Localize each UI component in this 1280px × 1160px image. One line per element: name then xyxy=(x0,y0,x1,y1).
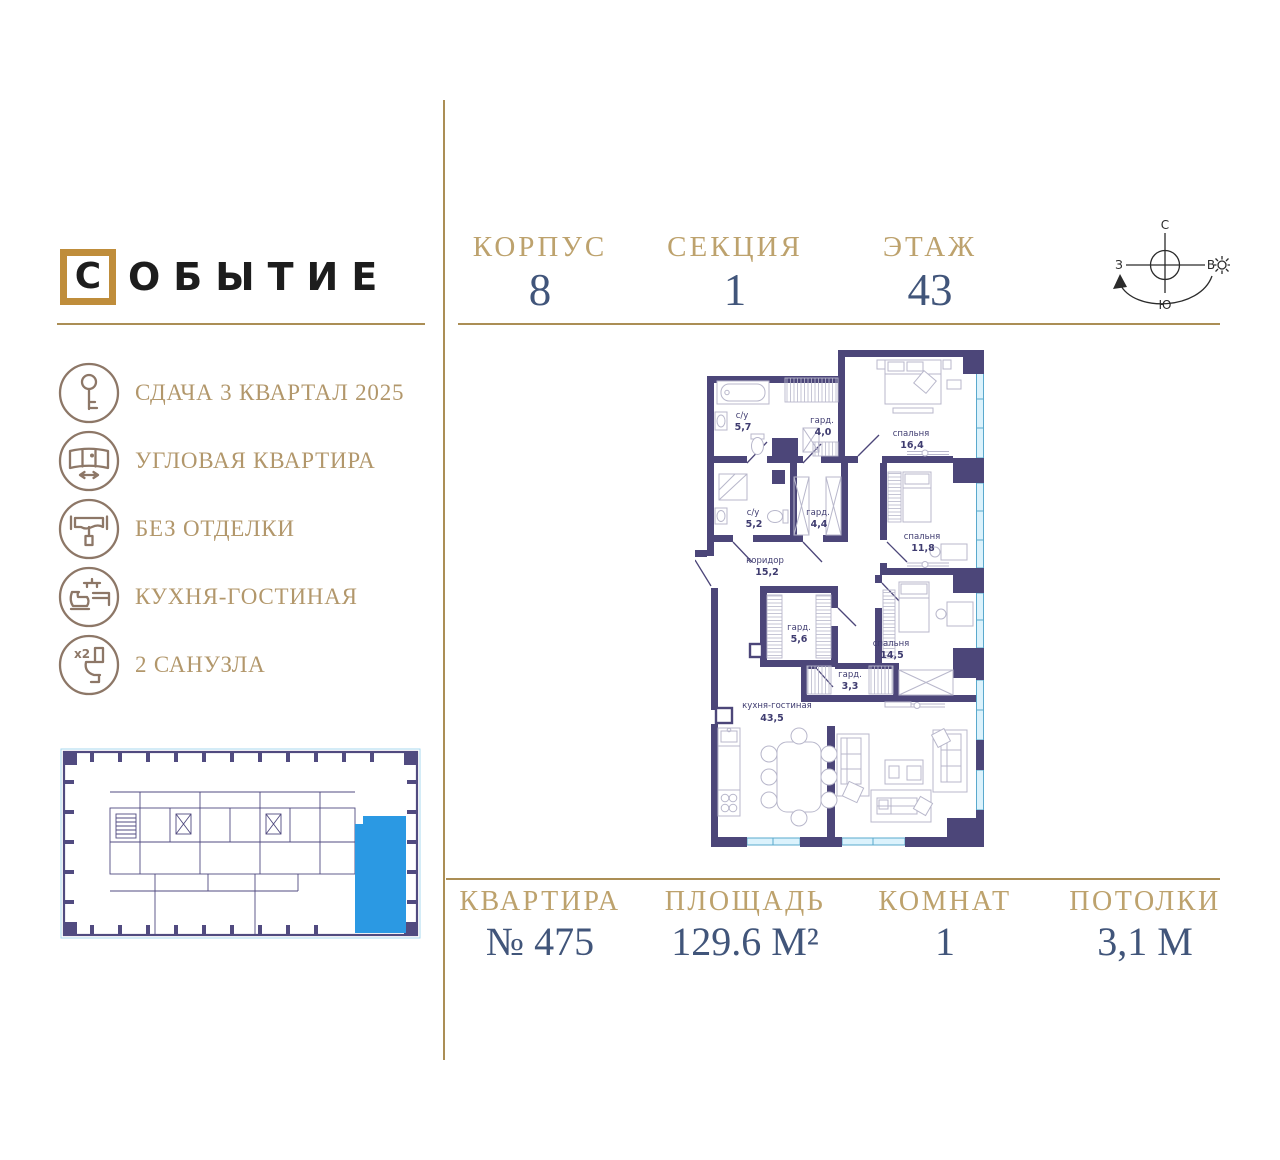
feature-label: БЕЗ ОТДЕЛКИ xyxy=(135,516,295,542)
field-section: СЕКЦИЯ 1 xyxy=(640,231,830,313)
field-label: СЕКЦИЯ xyxy=(640,231,830,264)
feature-handover: СДАЧА 3 КВАРТАЛ 2025 xyxy=(57,361,437,425)
field-value: 3,1 М xyxy=(1045,922,1245,962)
field-value: 1 xyxy=(640,268,830,313)
field-ceilings: ПОТОЛКИ 3,1 М xyxy=(1045,886,1245,962)
kitchen-living-icon xyxy=(57,565,121,629)
rotation-arrow-head xyxy=(1113,274,1127,289)
feature-label: СДАЧА 3 КВАРТАЛ 2025 xyxy=(135,380,404,406)
shaft-niche xyxy=(750,644,762,657)
glass-partition xyxy=(899,670,953,695)
svg-text:43,5: 43,5 xyxy=(760,713,783,724)
field-label: КОРПУС xyxy=(445,231,635,264)
svg-text:гард.: гард. xyxy=(806,508,830,518)
toilet-count-badge: x2 xyxy=(74,647,90,661)
compass-north-label: С xyxy=(1161,218,1169,232)
compass-west-label: З xyxy=(1115,258,1123,272)
svg-text:3,3: 3,3 xyxy=(842,681,859,692)
corner-window-icon xyxy=(57,429,121,493)
field-value: 129.6 М² xyxy=(645,922,845,962)
shaft-niche xyxy=(716,708,732,723)
feature-kitchen-living: КУХНЯ-ГОСТИНАЯ xyxy=(57,565,437,629)
field-value: 1 xyxy=(845,922,1045,962)
svg-text:гард.: гард. xyxy=(810,416,834,426)
svg-text:4,0: 4,0 xyxy=(815,427,832,438)
field-value: 43 xyxy=(835,268,1025,313)
field-apartment-number: КВАРТИРА № 475 xyxy=(440,886,640,962)
field-value: № 475 xyxy=(440,922,640,962)
logo-boxed-letter: С xyxy=(75,259,101,295)
field-rooms: КОМНАТ 1 xyxy=(845,886,1045,962)
svg-text:15,2: 15,2 xyxy=(755,567,778,578)
svg-text:кухня-гостиная: кухня-гостиная xyxy=(742,701,812,711)
sun-icon xyxy=(1213,256,1230,274)
field-floor: ЭТАЖ 43 xyxy=(835,231,1025,313)
field-label: КОМНАТ xyxy=(845,886,1045,918)
field-label: ПОТОЛКИ xyxy=(1045,886,1245,918)
svg-text:коридор: коридор xyxy=(746,556,784,566)
toilet-x2-icon: x2 xyxy=(57,633,121,697)
sidebar-divider xyxy=(57,323,425,325)
svg-text:гард.: гард. xyxy=(838,670,862,680)
feature-two-bathrooms: x2 2 САНУЗЛА xyxy=(57,633,437,697)
svg-text:4,4: 4,4 xyxy=(811,519,828,530)
feature-label: 2 САНУЗЛА xyxy=(135,652,266,678)
svg-text:16,4: 16,4 xyxy=(900,440,924,451)
svg-text:спальня: спальня xyxy=(904,532,941,542)
logo-text: ОБЫТИЕ xyxy=(128,258,390,296)
key-icon xyxy=(57,361,121,425)
footer-divider xyxy=(446,878,1220,880)
field-label: ЭТАЖ xyxy=(835,231,1025,264)
feature-label: УГЛОВАЯ КВАРТИРА xyxy=(135,448,376,474)
svg-text:с/у: с/у xyxy=(747,508,760,518)
field-area: ПЛОЩАДЬ 129.6 М² xyxy=(645,886,845,962)
field-label: КВАРТИРА xyxy=(440,886,640,918)
logo-frame: С xyxy=(60,249,116,305)
svg-text:спальня: спальня xyxy=(873,639,910,649)
svg-text:с/у: с/у xyxy=(736,411,749,421)
svg-text:5,2: 5,2 xyxy=(746,519,763,530)
header-divider xyxy=(458,323,1220,325)
apartment-card: С ОБЫТИЕ СДАЧА 3 КВАРТАЛ 2025 УГЛОВАЯ КВ… xyxy=(0,0,1280,1160)
svg-text:11,8: 11,8 xyxy=(911,543,935,554)
feature-list: СДАЧА 3 КВАРТАЛ 2025 УГЛОВАЯ КВАРТИРА БЕ… xyxy=(57,361,437,697)
field-label: ПЛОЩАДЬ xyxy=(645,886,845,918)
feature-label: КУХНЯ-ГОСТИНАЯ xyxy=(135,584,358,610)
feature-corner-apartment: УГЛОВАЯ КВАРТИРА xyxy=(57,429,437,493)
svg-text:5,6: 5,6 xyxy=(791,634,808,645)
svg-text:5,7: 5,7 xyxy=(735,422,752,433)
highlighted-unit xyxy=(355,816,406,933)
field-value: 8 xyxy=(445,268,635,313)
svg-text:спальня: спальня xyxy=(893,429,930,439)
compass-south-label: Ю xyxy=(1159,298,1172,312)
brand-logo: С ОБЫТИЕ xyxy=(60,230,422,324)
field-building: КОРПУС 8 xyxy=(445,231,635,313)
floor-overview-plan xyxy=(58,746,424,942)
paint-roller-icon xyxy=(57,497,121,561)
feature-no-finishing: БЕЗ ОТДЕЛКИ xyxy=(57,497,437,561)
apartment-floor-plan: с/у 5,7 гард. 4,0 спальня 16,4 с/у 5,2 г… xyxy=(695,350,991,850)
compass-rose: С З В Ю xyxy=(1098,216,1230,313)
svg-text:гард.: гард. xyxy=(787,623,811,633)
svg-text:14,5: 14,5 xyxy=(880,650,903,661)
